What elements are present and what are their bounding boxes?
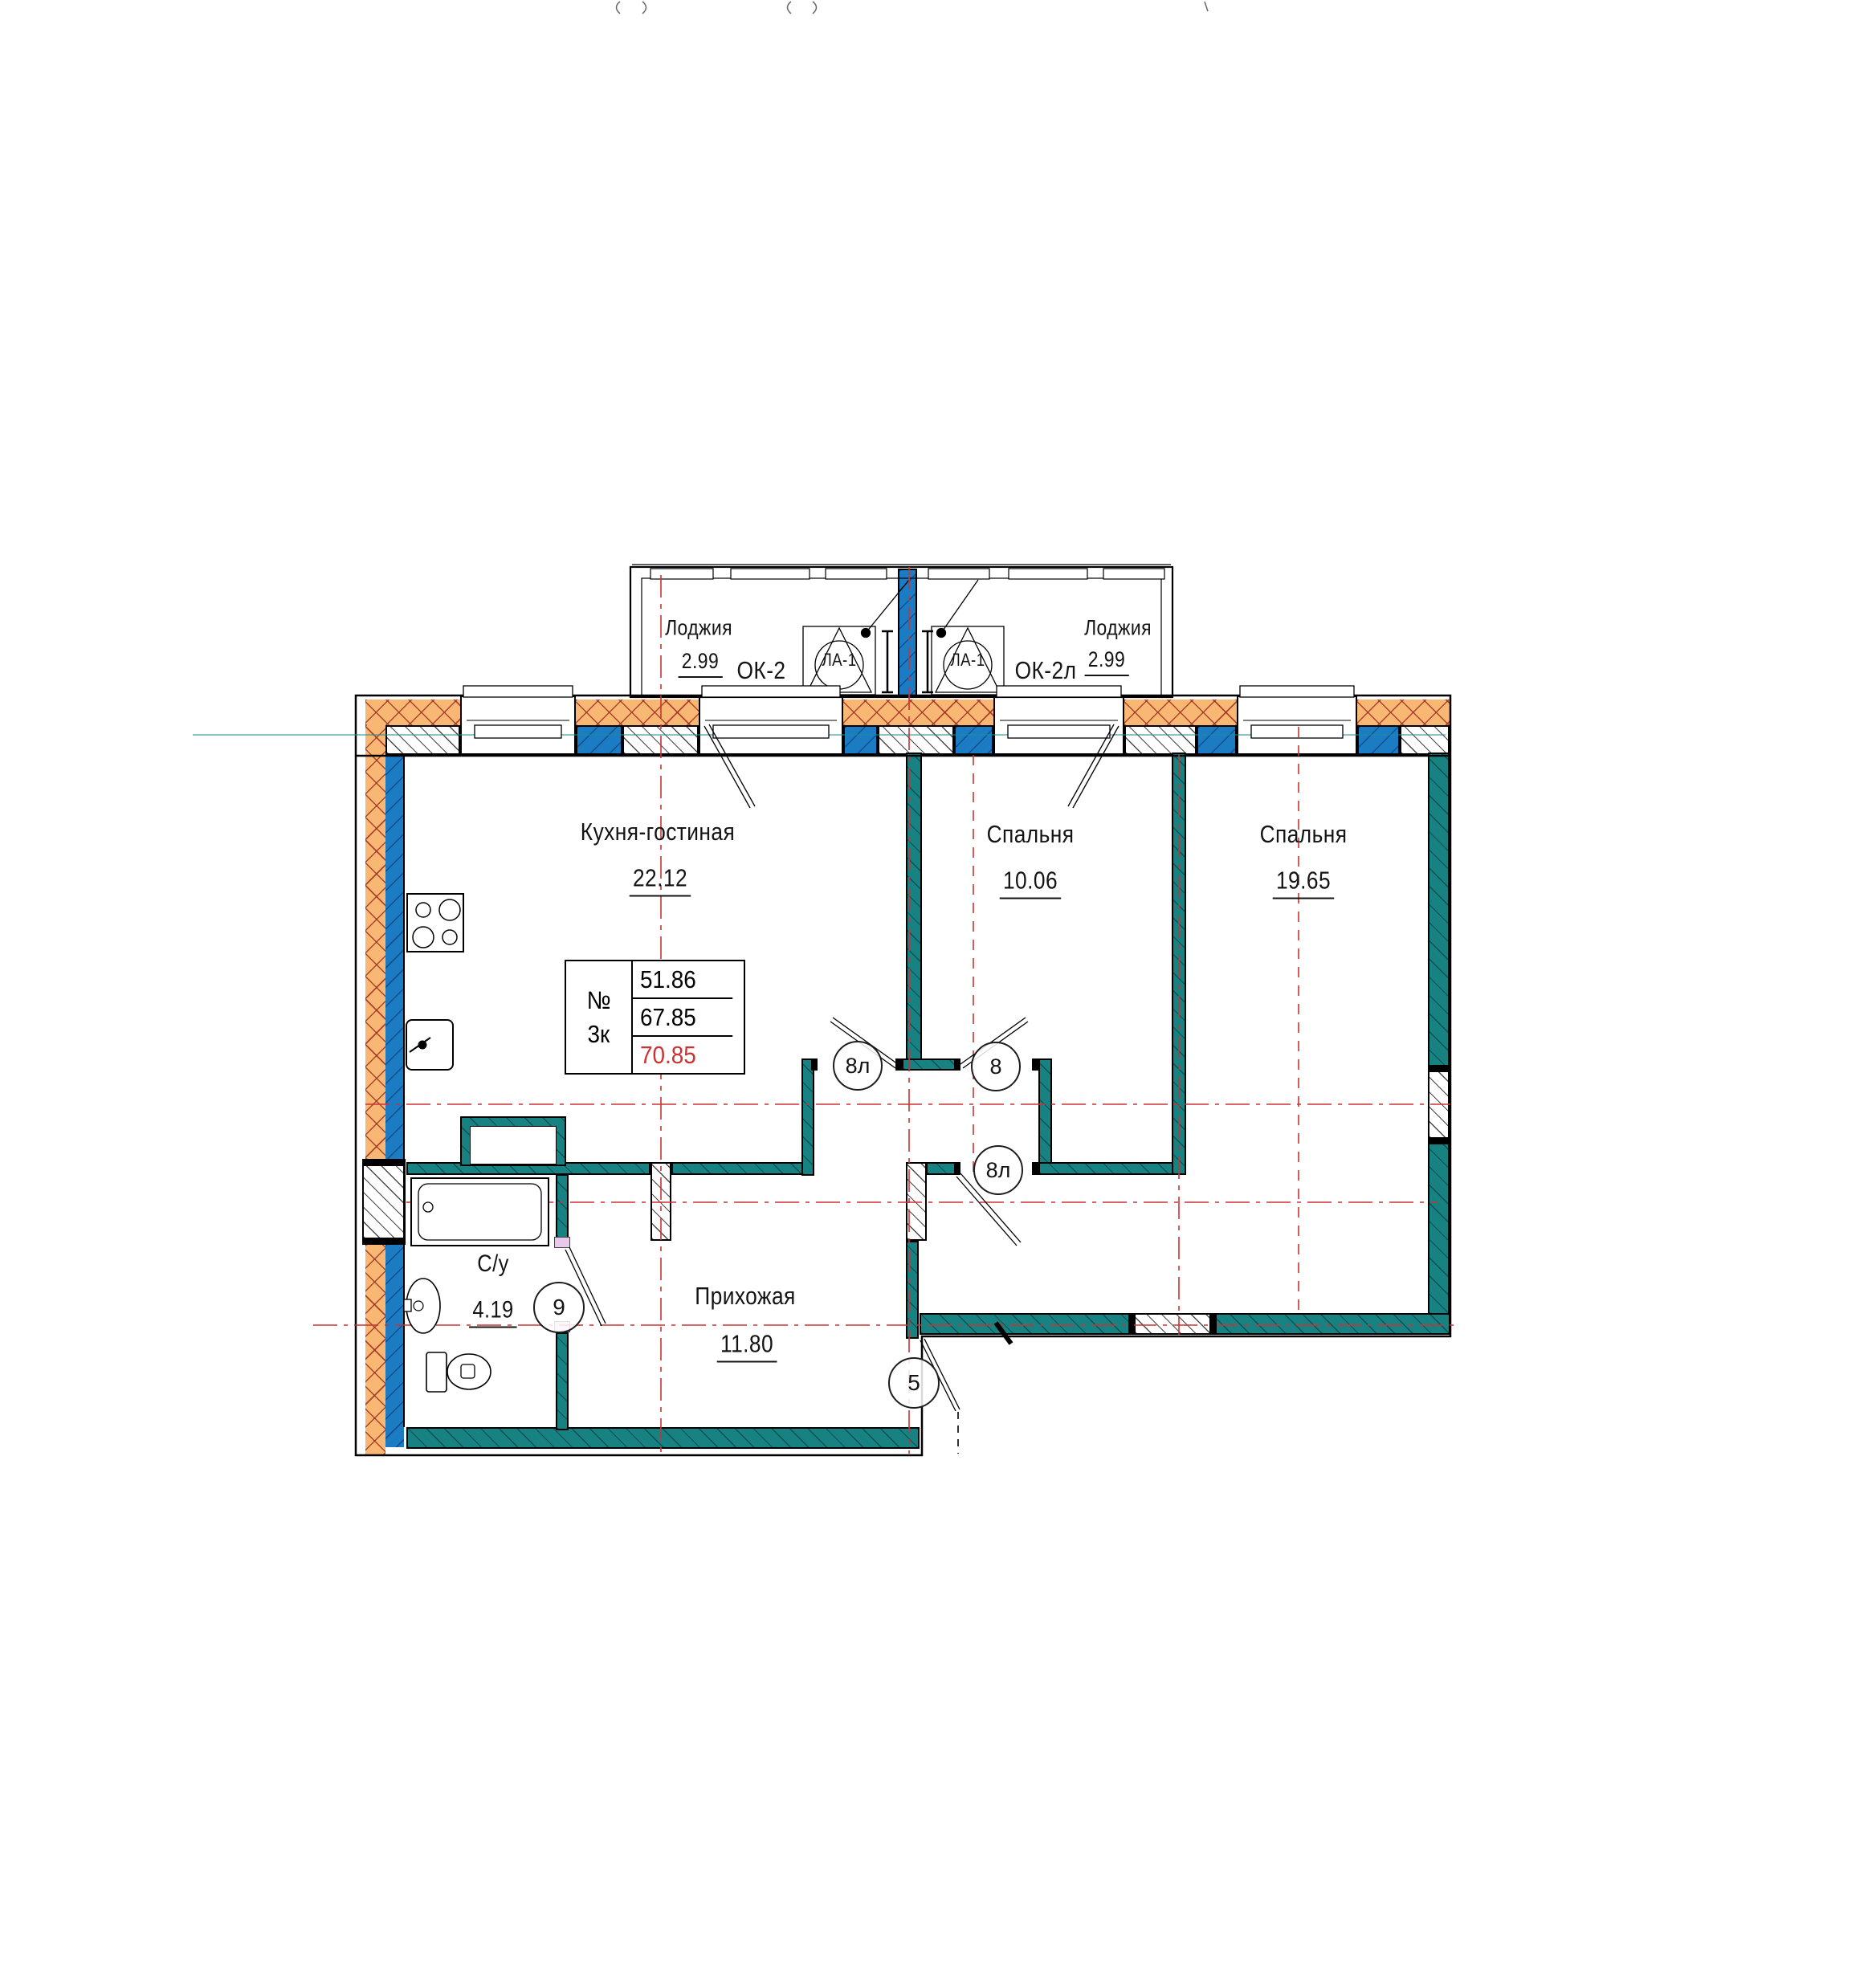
- wall-hallway-bottom: [406, 1427, 920, 1449]
- wall-kitchen-bedroom1: [906, 753, 922, 1060]
- loggia-right-window-mark: ОК-2л: [1015, 656, 1077, 685]
- wall-block-2: [576, 725, 622, 755]
- wall-block-9: [1357, 725, 1400, 755]
- washbasin-icon: [404, 1279, 440, 1333]
- bathroom-label: С/у: [477, 1250, 509, 1278]
- wall-insulation-top-3: [843, 700, 993, 725]
- wall-insulation-top-5: [1357, 700, 1450, 725]
- loggia-right-label: Лоджия: [1084, 616, 1152, 641]
- bedroom1-area: 10.06: [1000, 867, 1062, 899]
- stamp-living-area: 51.86: [633, 961, 732, 999]
- wall-u-horizontal: [1038, 1162, 1186, 1175]
- wall-entrance-side: [906, 1241, 919, 1339]
- louver-symbol-left: [803, 580, 909, 695]
- wall-corridor-bottom-seg: [926, 1162, 956, 1175]
- wall-bath-divider-upper: [556, 1174, 569, 1238]
- bedroom2-label: Спальня: [1260, 820, 1348, 849]
- hallway-area: 11.80: [717, 1330, 777, 1363]
- wall-block-5: [878, 725, 954, 755]
- loggia-right-area: 2.99: [1085, 647, 1129, 676]
- hallway-label: Прихожая: [695, 1282, 796, 1311]
- window-bedroom2-bottom: [1134, 1313, 1211, 1335]
- bathroom-area: 4.19: [469, 1297, 517, 1328]
- outer-contour: [356, 695, 1450, 1455]
- floor-plan: Лоджия 2.99 ОК-2 ЛА-1 ЛА-1 ОК-2л 2.99 Ло…: [0, 0, 1876, 1966]
- wall-masonry-left-2: [385, 1245, 404, 1447]
- door-mark-bedroom2: 8л: [973, 1145, 1023, 1195]
- balcony-door-kitchen: [699, 695, 843, 755]
- wall-block-7: [1124, 725, 1197, 755]
- kitchen-sink-icon: [406, 1020, 453, 1070]
- loggia-left-area: 2.99: [679, 649, 723, 678]
- loggia-left-window-mark: ОК-2: [737, 656, 786, 685]
- wall-bath-top-right: [671, 1162, 814, 1175]
- wall-u-vertical: [1038, 1058, 1052, 1175]
- loggia-left-label: Лоджия: [665, 616, 732, 641]
- wall-insulation-top-2: [576, 700, 699, 725]
- stamp-total-area: 70.85: [633, 1037, 732, 1073]
- louver-left-mark: ЛА-1: [822, 650, 856, 671]
- wall-block-4: [843, 725, 878, 755]
- wall-block-6: [954, 725, 993, 755]
- wall-block-10: [1400, 725, 1450, 755]
- kitchen-living-area: 22.12: [630, 864, 691, 897]
- pier-bath: [650, 1162, 671, 1241]
- wall-masonry-left-1: [385, 755, 404, 1159]
- door-leaves: [565, 1018, 1028, 1411]
- linework-layer: [0, 0, 1876, 1966]
- door-mark-entrance: 5: [888, 1357, 940, 1409]
- bathtub-icon: [411, 1178, 549, 1246]
- stamp-apartment-type: 3к: [588, 1020, 610, 1049]
- stamp-apartment-area: 67.85: [633, 999, 732, 1037]
- door-mark-bedroom1: 8: [971, 1042, 1021, 1091]
- apartment-stamp-table: № 3к 51.86 67.85 70.85: [565, 960, 745, 1075]
- stamp-number-sign: №: [587, 986, 611, 1015]
- loggia-divider-wall: [898, 569, 917, 697]
- louver-symbol-right: [932, 580, 1004, 695]
- balcony-door-bedroom1: [993, 695, 1124, 755]
- window-bathroom-left: [362, 1165, 406, 1239]
- wall-bath-divider-lower: [556, 1332, 569, 1430]
- window-kitchen: [460, 695, 576, 755]
- door-jamb-bath-top: [554, 1237, 570, 1248]
- wall-block-3: [622, 725, 699, 755]
- wall-bedroom1-bedroom2: [1172, 753, 1186, 1175]
- door-mark-bathroom: 9: [533, 1282, 585, 1333]
- sheet-edge-marks: [617, 2, 1209, 14]
- louver-right-mark: ЛА-1: [950, 650, 985, 671]
- wall-block-1: [385, 725, 460, 755]
- bedroom2-area: 19.65: [1273, 867, 1335, 899]
- wall-insulation-left-2: [365, 1245, 385, 1455]
- wall-kitchen-bedroom1-foot: [902, 1058, 956, 1071]
- wall-insulation-left-1: [365, 725, 385, 1159]
- pier-corridor: [906, 1162, 927, 1241]
- wall-corridor-left: [801, 1058, 814, 1176]
- kitchen-living-label: Кухня-гостиная: [581, 818, 735, 846]
- wall-insulation-top-4: [1124, 700, 1237, 725]
- door-mark-kitchen-corridor: 8л: [833, 1041, 883, 1091]
- wall-right-exterior-upper: [1428, 753, 1450, 1071]
- window-bedroom2-right: [1428, 1071, 1450, 1139]
- leader-dot: [862, 629, 871, 638]
- wall-right-exterior-lower: [1428, 1139, 1450, 1315]
- window-bedroom2: [1237, 695, 1357, 755]
- wall-block-8: [1197, 725, 1237, 755]
- wall-insulation-top-1: [365, 700, 460, 725]
- leader-dot: [937, 629, 946, 638]
- kitchen-stove-icon: [407, 894, 463, 952]
- toilet-icon: [426, 1352, 491, 1392]
- bedroom1-label: Спальня: [987, 820, 1075, 849]
- duct-niche-inner: [470, 1126, 557, 1165]
